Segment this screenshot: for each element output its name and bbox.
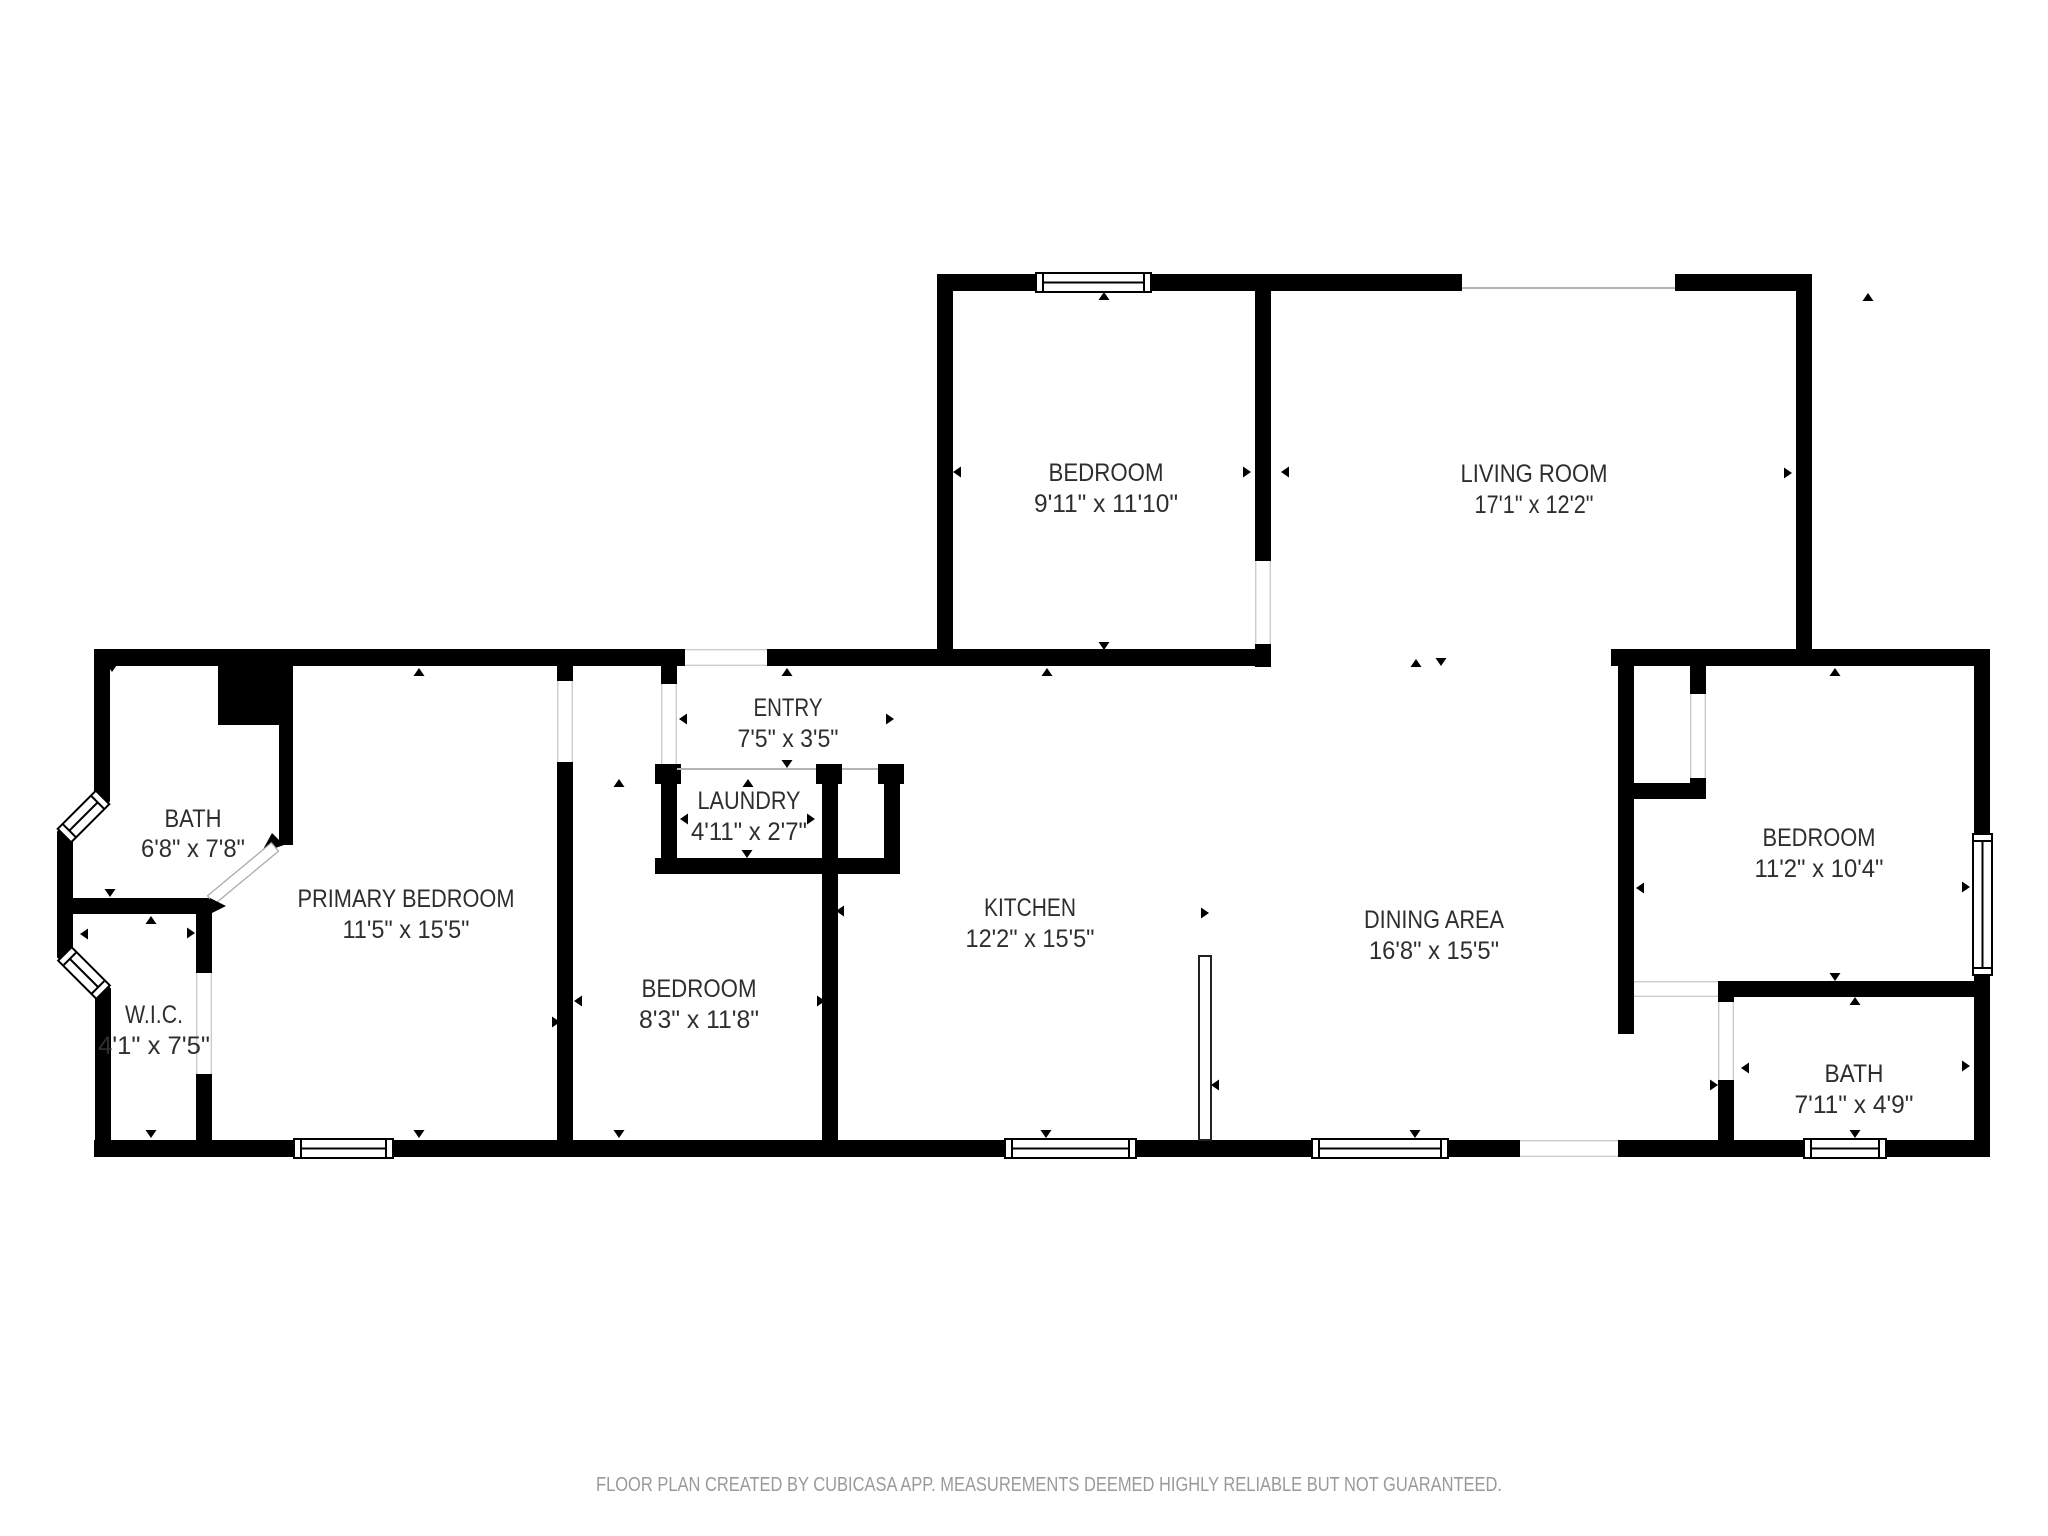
svg-text:BATH: BATH (1825, 1060, 1884, 1088)
svg-text:7'5" x 3'5": 7'5" x 3'5" (738, 725, 839, 753)
svg-text:16'8" x 15'5": 16'8" x 15'5" (1369, 937, 1499, 965)
svg-text:BATH: BATH (165, 805, 222, 833)
svg-text:7'11" x 4'9": 7'11" x 4'9" (1795, 1091, 1914, 1119)
svg-text:LAUNDRY: LAUNDRY (698, 787, 801, 815)
svg-text:W.I.C.: W.I.C. (125, 1001, 183, 1029)
svg-text:8'3" x 11'8": 8'3" x 11'8" (639, 1006, 759, 1034)
svg-text:KITCHEN: KITCHEN (984, 894, 1076, 922)
svg-text:11'5" x 15'5": 11'5" x 15'5" (343, 916, 470, 944)
svg-text:LIVING ROOM: LIVING ROOM (1461, 460, 1608, 488)
svg-text:BEDROOM: BEDROOM (1763, 824, 1876, 852)
svg-text:11'2" x 10'4": 11'2" x 10'4" (1755, 855, 1884, 883)
svg-text:12'2" x 15'5": 12'2" x 15'5" (966, 925, 1095, 953)
svg-text:PRIMARY BEDROOM: PRIMARY BEDROOM (298, 885, 515, 913)
svg-text:6'8" x 7'8": 6'8" x 7'8" (141, 835, 245, 863)
svg-text:9'11" x 11'10": 9'11" x 11'10" (1034, 490, 1178, 518)
svg-text:4'1" x 7'5": 4'1" x 7'5" (98, 1032, 210, 1060)
svg-text:BEDROOM: BEDROOM (642, 975, 757, 1003)
svg-text:17'1" x 12'2": 17'1" x 12'2" (1475, 491, 1594, 519)
svg-text:ENTRY: ENTRY (754, 694, 823, 722)
svg-text:4'11" x 2'7": 4'11" x 2'7" (691, 818, 807, 846)
svg-text:FLOOR PLAN CREATED BY CUBICASA: FLOOR PLAN CREATED BY CUBICASA APP. MEAS… (596, 1474, 1502, 1496)
svg-text:DINING AREA: DINING AREA (1364, 906, 1504, 934)
svg-text:BEDROOM: BEDROOM (1049, 459, 1164, 487)
